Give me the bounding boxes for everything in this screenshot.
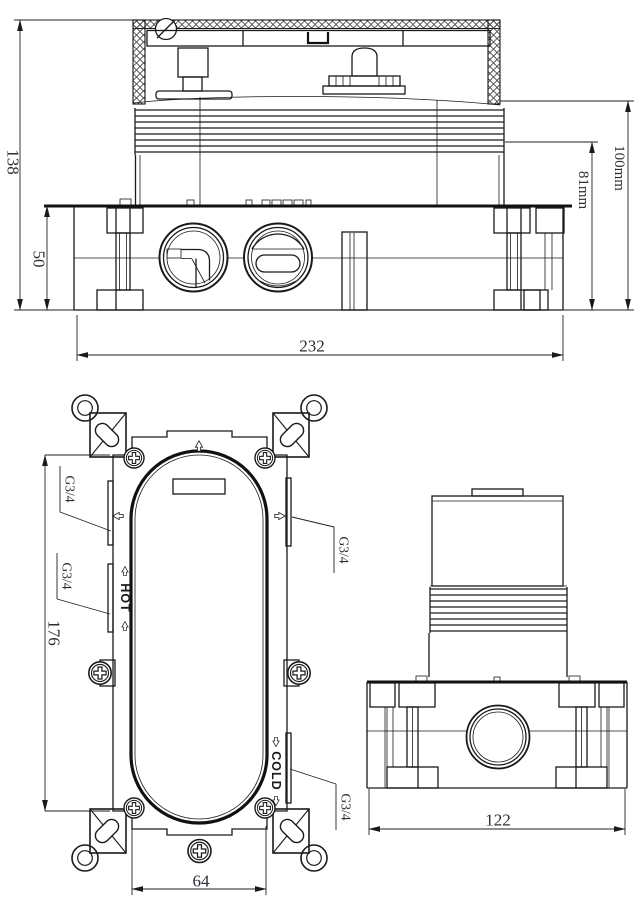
diverter-port (160, 224, 228, 292)
screw-icon-top-left (124, 448, 144, 468)
dimension-box-height: 50 (30, 206, 49, 310)
port-label-left-bottom: G3/4 (57, 553, 110, 614)
dimension-depth-81: 81mm (505, 142, 598, 310)
cold-arrow-top-icon (273, 737, 279, 746)
side-plaster-cap (430, 489, 567, 586)
screw-icon-bottom-right (255, 798, 275, 818)
screw-icon-top-right (255, 448, 275, 468)
svg-text:G3/4: G3/4 (63, 476, 78, 503)
dimension-overall-height: 138 (4, 20, 134, 310)
cold-label: COLD (269, 751, 283, 790)
dim-label-122: 122 (485, 811, 511, 830)
port-boss-left-top (108, 481, 113, 545)
plan-view: HOT COLD G3/4 G3/4 G3/4 G3/4 176 (45, 395, 354, 895)
port-label-right-top: G3/4 (292, 517, 352, 573)
box-top-fittings (120, 199, 311, 205)
inner-boss (342, 232, 367, 310)
hot-arrow-bottom-icon (122, 621, 128, 630)
cover-screw-icon (156, 19, 177, 40)
side-right-bracket (556, 683, 624, 788)
svg-text:G3/4: G3/4 (339, 794, 354, 821)
dim-label-138: 138 (4, 149, 23, 175)
side-view: 122 (367, 489, 627, 835)
side-threaded-collar (430, 587, 567, 633)
screw-icon-bottom-left (124, 798, 144, 818)
ear-top-left (72, 395, 126, 457)
dim-label-81mm: 81mm (575, 171, 591, 210)
screw-icon-mid-right (288, 662, 310, 684)
svg-text:G3/4: G3/4 (60, 563, 75, 590)
dim-label-232: 232 (299, 337, 325, 356)
plug-port (244, 224, 312, 292)
port-label-left-top: G3/4 (60, 466, 111, 531)
valve-technical-drawing: 138 50 232 81mm 100mm (0, 0, 640, 903)
ear-bottom-right (273, 809, 327, 871)
valve-opening (131, 451, 267, 823)
wall-box (44, 206, 572, 310)
hot-label: HOT (118, 583, 132, 612)
cover-internals (133, 31, 500, 106)
ear-bottom-left (72, 809, 126, 871)
dim-label-176: 176 (45, 620, 64, 646)
screw-icon-bottom-center (188, 840, 211, 863)
side-outlet-port (467, 706, 530, 769)
side-left-bracket (370, 683, 438, 788)
dimension-overall-width: 232 (77, 315, 563, 361)
front-view: 138 50 232 81mm 100mm (4, 19, 635, 362)
dim-label-100mm: 100mm (611, 145, 627, 191)
screw-icon-mid-left (89, 662, 111, 684)
flow-arrow-right-icon (275, 512, 285, 519)
svg-text:G3/4: G3/4 (337, 537, 352, 564)
ear-top-right (273, 395, 327, 457)
flow-arrow-left-icon (113, 512, 123, 519)
dimension-side-width: 122 (369, 789, 625, 835)
dim-label-64: 64 (193, 872, 211, 891)
dimension-body-length: 176 (45, 455, 111, 811)
port-boss-left-bottom (108, 564, 113, 632)
technical-drawing-page: 138 50 232 81mm 100mm (0, 0, 640, 903)
threaded-collar (135, 108, 504, 155)
nameplate (173, 479, 225, 494)
side-wall-box (367, 682, 627, 788)
right-mount-bracket (494, 208, 540, 310)
left-mount-bracket (97, 208, 143, 310)
cartridge-stem (352, 48, 377, 76)
hot-arrow-top-icon (122, 566, 128, 575)
side-neck (416, 633, 580, 682)
dim-label-50: 50 (30, 251, 49, 268)
